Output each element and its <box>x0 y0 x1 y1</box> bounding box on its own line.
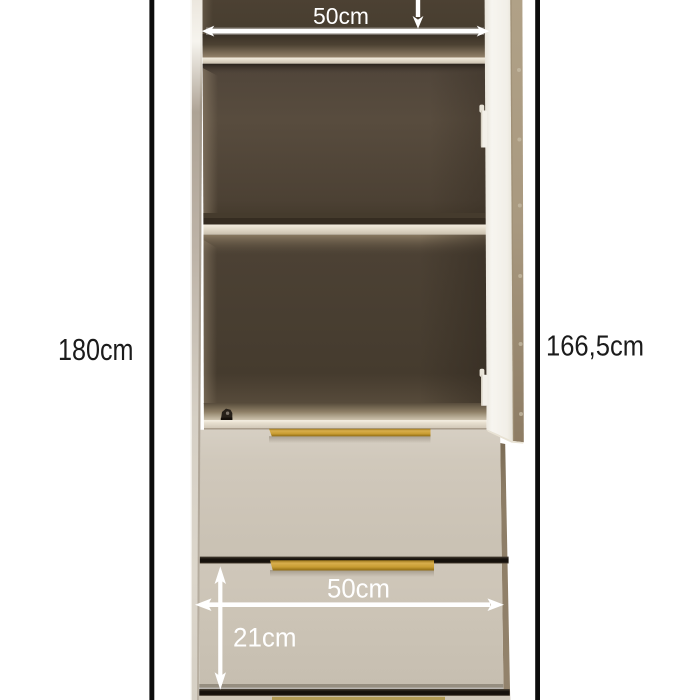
svg-text:166,5cm: 166,5cm <box>546 331 644 363</box>
svg-text:50cm: 50cm <box>313 3 369 29</box>
svg-text:21cm: 21cm <box>233 623 297 653</box>
svg-text:180cm: 180cm <box>58 333 134 367</box>
svg-text:50cm: 50cm <box>327 573 390 603</box>
